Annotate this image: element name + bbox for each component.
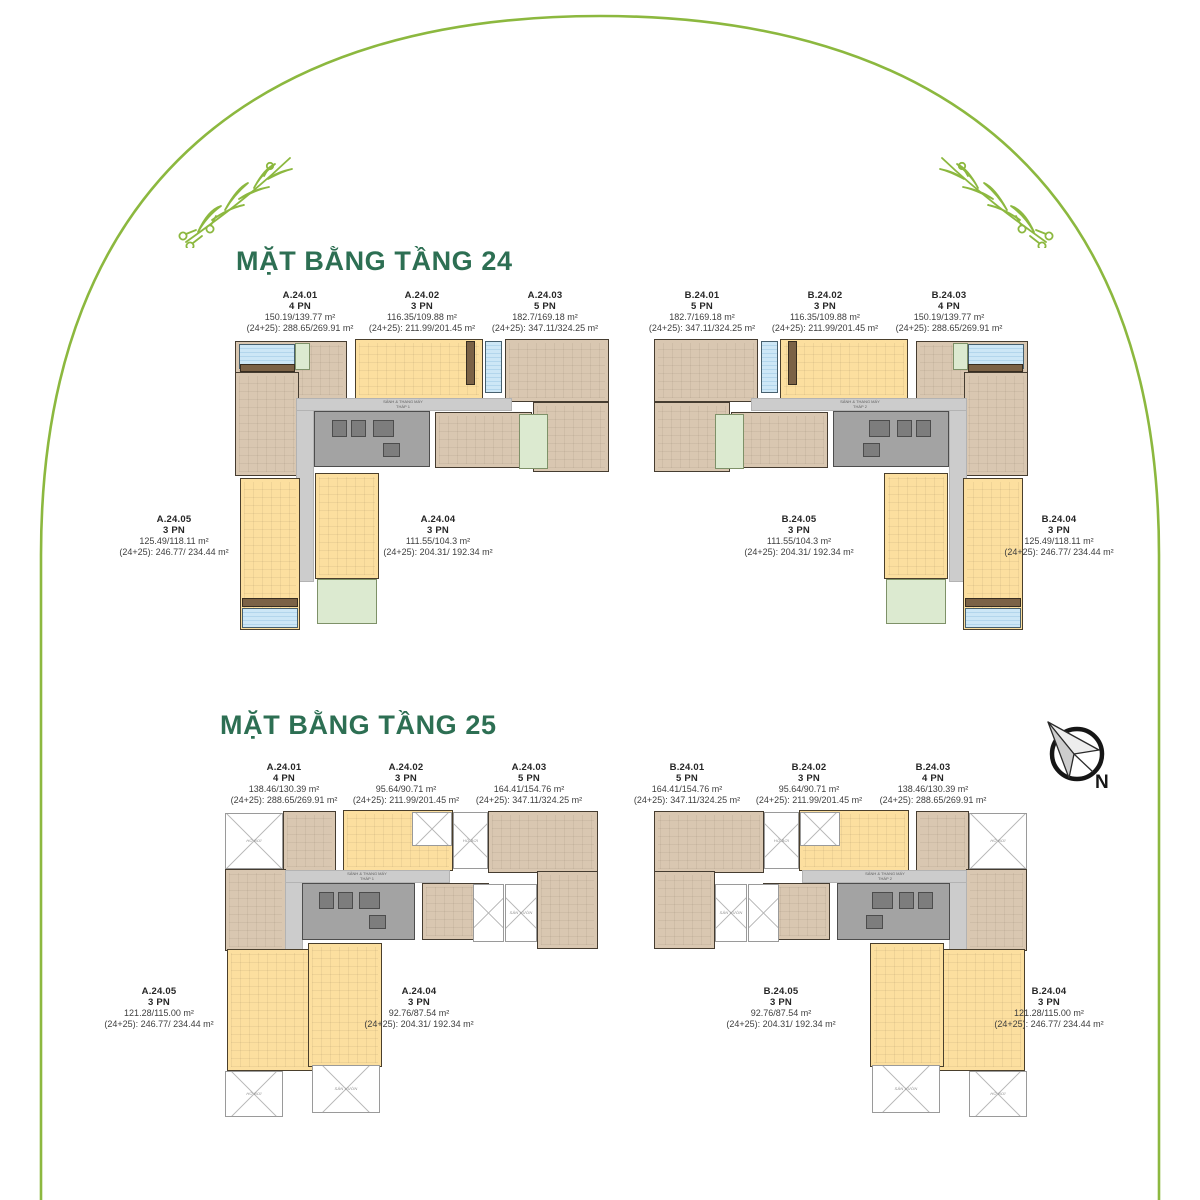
void-label: SÂN VƯỜN xyxy=(716,910,746,915)
unit-region xyxy=(731,412,828,468)
void-region: SÂN VƯỜN xyxy=(872,1065,940,1113)
garden-region xyxy=(295,343,310,370)
unit-label-f25-a04: A.24.04 3 PN 92.76/87.54 m² (24+25): 204… xyxy=(303,986,535,1030)
unit-region xyxy=(505,339,609,402)
void-region xyxy=(748,884,779,942)
balcony-region xyxy=(242,598,298,607)
unit-region xyxy=(654,811,764,873)
unit-region xyxy=(654,871,715,949)
void-label: HỒ BƠI xyxy=(226,838,282,843)
core-region xyxy=(833,411,949,467)
balcony-region xyxy=(240,364,295,372)
corridor-label: SẢNH & THANG MÁYTHÁP 1 xyxy=(343,399,463,409)
unit-region xyxy=(654,339,758,402)
floorplan-f24-wing-b: SẢNH & THANG MÁYTHÁP 2 xyxy=(650,336,1030,646)
unit-region xyxy=(780,339,908,399)
corridor-label: SẢNH & THANG MÁYTHÁP 2 xyxy=(800,399,920,409)
unit-region xyxy=(235,372,299,476)
unit-region xyxy=(225,869,286,951)
void-region xyxy=(800,812,840,846)
core-region xyxy=(837,883,950,940)
balcony-region xyxy=(968,364,1023,372)
unit-region xyxy=(355,339,483,399)
void-label: SÂN VƯỜN xyxy=(506,910,536,915)
void-region: SÂN VƯỜN xyxy=(312,1065,380,1113)
garden-region xyxy=(953,343,968,370)
pool-region xyxy=(761,341,778,393)
unit-label-f25-b04: B.24.04 3 PN 121.28/115.00 m² (24+25): 2… xyxy=(933,986,1165,1030)
balcony-region xyxy=(466,341,475,385)
pool-region xyxy=(965,608,1021,628)
void-label: HỒ BƠI xyxy=(226,1091,282,1096)
unit-label-f25-a05: A.24.05 3 PN 121.28/115.00 m² (24+25): 2… xyxy=(43,986,275,1030)
void-label: SÂN VƯỜN xyxy=(313,1086,379,1091)
corridor-label: SẢNH & THANG MÁYTHÁP 2 xyxy=(835,871,935,881)
void-region: HỒ BƠI xyxy=(969,813,1027,869)
unit-label-f25-b03: B.24.03 4 PN 138.46/130.39 m² (24+25): 2… xyxy=(817,762,1049,806)
void-region: HỒ BƠI xyxy=(764,812,799,869)
unit-region xyxy=(916,811,969,871)
garden-region xyxy=(886,579,946,624)
balcony-region xyxy=(788,341,797,385)
unit-region xyxy=(488,811,598,873)
void-region xyxy=(473,884,504,942)
unit-label-f24-b05: B.24.05 3 PN 111.55/104.3 m² (24+25): 20… xyxy=(683,514,915,558)
unit-label-f24-b04: B.24.04 3 PN 125.49/118.11 m² (24+25): 2… xyxy=(943,514,1175,558)
pool-region xyxy=(485,341,502,393)
garden-region xyxy=(317,579,377,624)
void-label: HỒ BƠI xyxy=(765,838,798,843)
unit-region xyxy=(966,869,1027,951)
branch-left-icon xyxy=(168,146,300,248)
floorplan-f25-wing-b: HỒ BƠI HỒ BƠI SÂN VƯỜN HỒ BƠI SÂN VƯỜN S… xyxy=(640,808,1030,1120)
unit-region xyxy=(435,412,532,468)
unit-label-f24-a05: A.24.05 3 PN 125.49/118.11 m² (24+25): 2… xyxy=(58,514,290,558)
void-region: HỒ BƠI xyxy=(969,1071,1027,1117)
void-label: SÂN VƯỜN xyxy=(873,1086,939,1091)
floor-25-title: MẶT BẰNG TẦNG 25 xyxy=(220,710,497,741)
void-region: SÂN VƯỜN xyxy=(505,884,537,942)
core-region xyxy=(314,411,430,467)
garden-region xyxy=(519,414,548,469)
corridor-label: SẢNH & THANG MÁYTHÁP 1 xyxy=(317,871,417,881)
unit-label-f25-b05: B.24.05 3 PN 92.76/87.54 m² (24+25): 204… xyxy=(665,986,897,1030)
void-region: HỒ BƠI xyxy=(225,1071,283,1117)
core-region xyxy=(302,883,415,940)
balcony-region xyxy=(965,598,1021,607)
void-region xyxy=(412,812,452,846)
page: MẶT BẰNG TẦNG 24 MẶT BẰNG TẦNG 25 N xyxy=(0,0,1200,1200)
unit-region xyxy=(537,871,598,949)
garden-region xyxy=(715,414,744,469)
void-label: HỒ BƠI xyxy=(970,1091,1026,1096)
floor-24-title: MẶT BẰNG TẦNG 24 xyxy=(236,246,513,277)
void-label: HỒ BƠI xyxy=(970,838,1026,843)
void-region: HỒ BƠI xyxy=(453,812,488,869)
void-region: SÂN VƯỜN xyxy=(715,884,747,942)
unit-region xyxy=(964,372,1028,476)
void-label: HỒ BƠI xyxy=(454,838,487,843)
unit-label-f24-b03: B.24.03 4 PN 150.19/139.77 m² (24+25): 2… xyxy=(833,290,1065,334)
floorplan-f24-wing-a: SẢNH & THANG MÁYTHÁP 1 xyxy=(233,336,613,646)
pool-region xyxy=(242,608,298,628)
unit-label-f24-a04: A.24.04 3 PN 111.55/104.3 m² (24+25): 20… xyxy=(322,514,554,558)
compass-n-label: N xyxy=(1095,772,1109,793)
unit-region xyxy=(283,811,336,871)
floorplan-f25-wing-a: HỒ BƠI HỒ BƠI SÂN VƯỜN HỒ BƠI SÂN VƯỜN S… xyxy=(222,808,612,1120)
void-region: HỒ BƠI xyxy=(225,813,283,869)
branch-right-icon xyxy=(932,146,1064,248)
